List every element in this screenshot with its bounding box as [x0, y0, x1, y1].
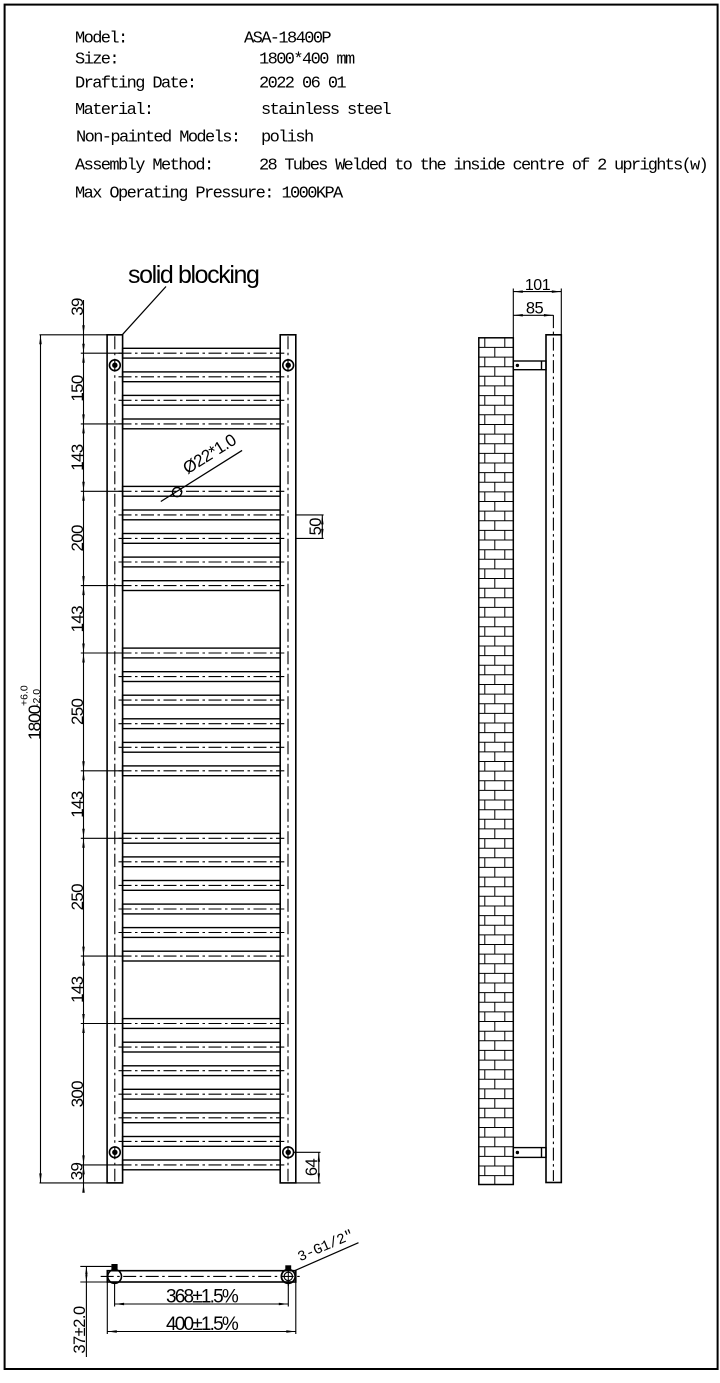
- svg-text:Assembly Method:: Assembly Method:: [75, 157, 213, 176]
- svg-text:400±1.5%: 400±1.5%: [166, 1314, 239, 1335]
- svg-text:ASA-18400P: ASA-18400P: [244, 30, 331, 49]
- svg-text:1800: 1800: [24, 704, 44, 740]
- svg-text:37±2.0: 37±2.0: [71, 1306, 89, 1354]
- svg-text:200: 200: [68, 525, 87, 552]
- svg-text:Size:: Size:: [75, 51, 118, 70]
- svg-text:polish: polish: [261, 129, 313, 148]
- svg-text:50: 50: [307, 518, 325, 536]
- svg-text:Drafting Date:: Drafting Date:: [75, 75, 195, 94]
- svg-text:101: 101: [525, 277, 551, 294]
- svg-text:300: 300: [68, 1081, 87, 1108]
- svg-text:28 Tubes Welded to the inside: 28 Tubes Welded to the inside centre of …: [259, 157, 707, 176]
- svg-text:39: 39: [68, 298, 87, 316]
- svg-text:2022 06 01: 2022 06 01: [259, 75, 346, 94]
- svg-text:solid blocking: solid blocking: [128, 261, 259, 289]
- svg-text:368±1.5%: 368±1.5%: [166, 1286, 239, 1307]
- svg-text:-2.0: -2.0: [31, 689, 43, 707]
- svg-text:143: 143: [68, 444, 87, 471]
- svg-text:143: 143: [68, 606, 87, 633]
- svg-text:+6.0: +6.0: [19, 685, 31, 706]
- svg-text:250: 250: [68, 884, 87, 911]
- svg-text:Max Operating Pressure: 1000KP: Max Operating Pressure: 1000KPA: [75, 185, 344, 204]
- svg-text:85: 85: [526, 300, 544, 318]
- svg-text:250: 250: [68, 699, 87, 726]
- svg-text:64: 64: [303, 1159, 321, 1177]
- svg-text:1800*400 mm: 1800*400 mm: [259, 51, 355, 70]
- svg-text:150: 150: [68, 375, 87, 402]
- svg-text:Non-painted Models:: Non-painted Models:: [76, 129, 239, 148]
- svg-text:Model:: Model:: [75, 30, 127, 49]
- svg-text:143: 143: [68, 791, 87, 818]
- svg-text:39: 39: [68, 1163, 87, 1181]
- svg-text:143: 143: [68, 976, 87, 1003]
- svg-text:Material:: Material:: [75, 101, 152, 120]
- svg-text:stainless steel: stainless steel: [261, 101, 391, 120]
